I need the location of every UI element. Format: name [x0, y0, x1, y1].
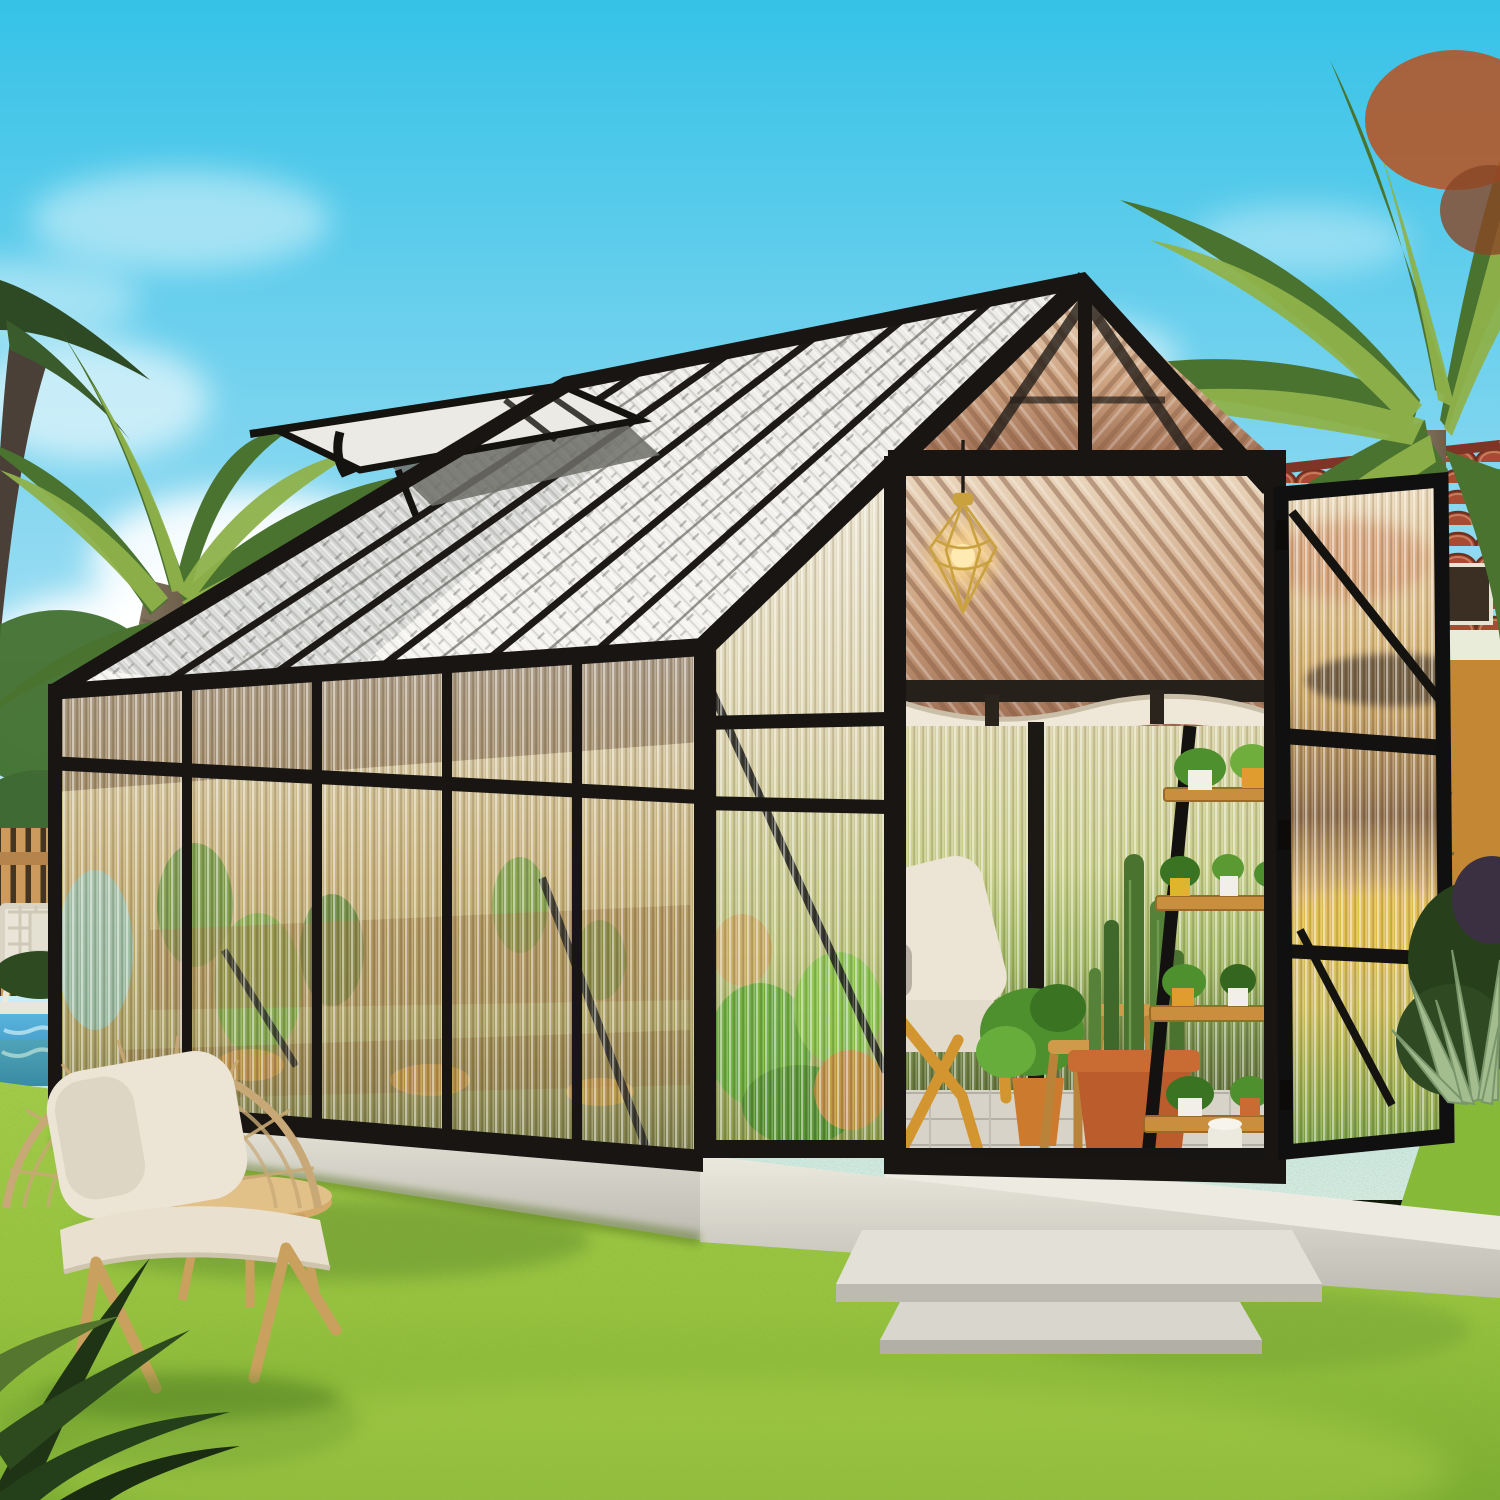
back-corner-post [48, 688, 62, 1112]
king-post [1078, 286, 1092, 456]
scene-canvas [0, 0, 1500, 1500]
shade-strap [1150, 690, 1164, 724]
left-door-jamb [884, 456, 906, 1168]
shade-strap [985, 694, 999, 728]
door-hinge [1276, 520, 1288, 550]
door-hinge [1280, 1080, 1292, 1110]
step-pads [836, 1230, 1322, 1354]
wall-mullion [442, 664, 452, 1130]
backyard-greenhouse-photo [0, 0, 1500, 1500]
door-hinge [1278, 820, 1290, 850]
wall-mullion [572, 656, 582, 1140]
front-base-rail [700, 1140, 890, 1158]
orange-pot [1012, 1078, 1064, 1146]
wall-mullion [182, 682, 192, 1110]
wall-mullion [312, 672, 322, 1120]
